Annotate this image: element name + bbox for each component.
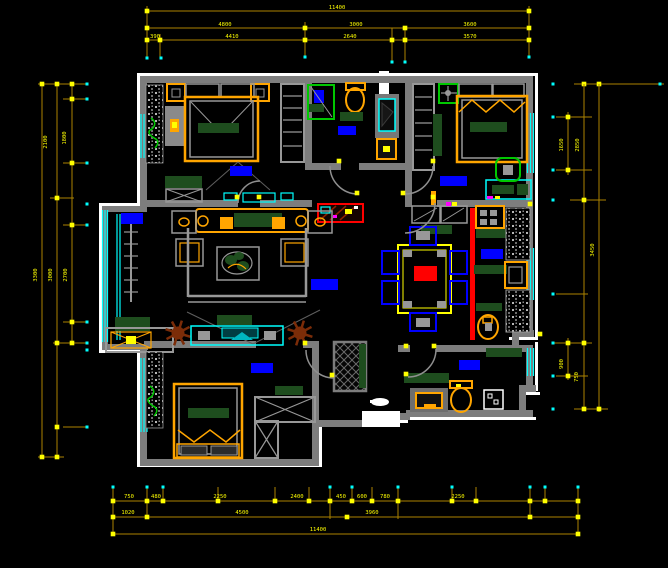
- dim-bottom-tick: [576, 499, 581, 504]
- dim-left-text: 2700: [63, 268, 69, 281]
- room-label-kitchen: [481, 249, 503, 259]
- outline-white: [319, 423, 322, 467]
- dim-right-tick: [582, 198, 587, 203]
- bathroom-2: [404, 373, 449, 383]
- bathroom-2: [424, 404, 436, 408]
- bathroom-2: [486, 348, 522, 357]
- kitchen: [474, 265, 507, 274]
- dim-left-tick: [40, 82, 45, 87]
- door: [330, 166, 358, 194]
- kitchen: [485, 323, 492, 331]
- dim-bottom-text: 450: [336, 494, 346, 500]
- door-tick: [401, 191, 406, 196]
- dim-bottom-tick: [145, 515, 150, 520]
- dim-left-point: [86, 98, 89, 101]
- living-room: [217, 315, 252, 325]
- dim-top-point: [391, 61, 394, 64]
- shaft: [359, 344, 366, 388]
- door-tick: [257, 195, 262, 200]
- dining-room: [450, 281, 467, 304]
- dim-bottom-text: 780: [380, 494, 390, 500]
- dining-room: [437, 250, 446, 257]
- door-tick: [404, 344, 409, 349]
- dim-left-point: [86, 349, 89, 352]
- dim-bottom-tick: [543, 499, 548, 504]
- dining-room: [403, 250, 412, 257]
- dim-top-tick: [145, 9, 150, 14]
- bathroom-2: [370, 400, 375, 403]
- wall: [260, 200, 312, 207]
- bedroom-1: [167, 84, 185, 101]
- dim-top-tick: [390, 38, 395, 43]
- dim-right-point: [552, 169, 555, 172]
- dim-bottom-tick: [350, 499, 355, 504]
- dim-top-tick: [145, 38, 150, 43]
- room-label-bedroom-3: [251, 363, 273, 373]
- bedroom-1: [186, 84, 219, 97]
- dining-room: [414, 266, 437, 281]
- dim-bottom-text: 11400: [310, 527, 327, 533]
- corridor: [452, 202, 457, 206]
- dim-top-text: 3600: [463, 22, 476, 28]
- dim-right-point: [552, 293, 555, 296]
- dim-left-point: [86, 203, 89, 206]
- dim-right-text: 3450: [590, 243, 596, 256]
- bathroom-2: [488, 394, 492, 398]
- dim-bottom-point: [451, 486, 454, 489]
- bathroom-2: [451, 388, 471, 412]
- bedroom-1: [172, 122, 177, 128]
- bedroom-1: [229, 102, 252, 126]
- bedroom-1: [221, 84, 254, 97]
- living-room: [264, 331, 276, 340]
- corridor: [345, 209, 352, 214]
- dim-top-tick: [403, 26, 408, 31]
- dim-right-tick: [597, 407, 602, 412]
- door: [238, 181, 260, 203]
- dim-bottom-text: 2250: [213, 494, 226, 500]
- dim-top-tick: [145, 26, 150, 31]
- outline-white: [404, 417, 536, 420]
- outline-white: [99, 203, 144, 206]
- dim-top-text: 2640: [343, 34, 356, 40]
- dim-left-text: 1800: [62, 131, 68, 144]
- dim-top-tick: [403, 38, 408, 43]
- bathroom-2-tick: [538, 332, 543, 337]
- bathroom-2: [494, 400, 498, 404]
- dim-right-point: [552, 83, 555, 86]
- bathroom-1: [309, 104, 324, 112]
- bedroom-1: [191, 102, 214, 126]
- dim-bottom-point: [351, 486, 354, 489]
- dim-top-point: [146, 57, 149, 60]
- dim-bottom-point: [544, 486, 547, 489]
- living-room: [220, 217, 233, 229]
- dim-bottom-tick: [328, 499, 333, 504]
- door-tick: [330, 373, 335, 378]
- dim-left-tick: [70, 223, 75, 228]
- dim-top-text: 4800: [218, 22, 231, 28]
- kitchen: [476, 229, 506, 238]
- door-tick: [404, 372, 409, 377]
- dim-right-text: 750: [574, 372, 580, 382]
- dim-top-text: 3570: [463, 34, 476, 40]
- living-room: [180, 243, 199, 262]
- bathroom-2: [456, 384, 461, 387]
- dim-bottom-point: [529, 486, 532, 489]
- corridor: [443, 208, 464, 221]
- dim-bottom-tick: [576, 532, 581, 537]
- dim-top-point: [304, 56, 307, 59]
- kitchen: [476, 303, 502, 311]
- living-room: [272, 217, 285, 229]
- dim-top-tick: [527, 26, 532, 31]
- kitchen: [490, 210, 497, 216]
- door-tick: [431, 159, 436, 164]
- corridor: [446, 202, 451, 206]
- outline-white: [535, 73, 538, 337]
- dining-room: [403, 301, 412, 308]
- dim-top-point: [404, 61, 407, 64]
- dim-top-text: 390: [150, 34, 160, 40]
- dim-bottom-point: [577, 486, 580, 489]
- wall: [405, 76, 412, 207]
- dim-bottom-tick: [145, 499, 150, 504]
- wall: [140, 459, 319, 466]
- dim-top-tick: [303, 26, 308, 31]
- bathroom-1: [340, 112, 363, 121]
- plant-icon: [172, 327, 185, 340]
- wall: [309, 163, 341, 170]
- kitchen: [483, 317, 492, 323]
- room-label-dining: [311, 279, 338, 290]
- dim-right-point: [552, 199, 555, 202]
- dining-room: [416, 318, 430, 327]
- room-label-bathroom-2: [459, 360, 480, 370]
- wall: [144, 200, 238, 207]
- bedroom-2-tick: [528, 202, 533, 207]
- dim-bottom-tick: [528, 515, 533, 520]
- bedroom-1: [172, 89, 180, 97]
- kitchen: [480, 219, 487, 225]
- dim-bottom-tick: [111, 532, 116, 537]
- kitchen: [490, 219, 497, 225]
- living-room: [179, 218, 189, 226]
- dim-left-tick: [40, 455, 45, 460]
- dim-bottom-point: [329, 486, 332, 489]
- bedroom-2: [470, 122, 507, 132]
- bedroom-2: [492, 185, 514, 194]
- wall: [102, 206, 147, 212]
- bedroom-2: [445, 90, 451, 96]
- outline-white: [99, 203, 102, 351]
- dim-left-point: [86, 342, 89, 345]
- dining-room: [437, 301, 446, 308]
- dim-left-tick: [55, 196, 60, 201]
- bathroom-2: [362, 411, 400, 427]
- dining-room: [450, 251, 467, 274]
- dim-top-text: 3000: [349, 22, 362, 28]
- door-tick: [355, 191, 360, 196]
- bedroom-2: [495, 196, 500, 199]
- dim-left-text: 2100: [43, 135, 49, 148]
- dim-bottom-text: 2250: [451, 494, 464, 500]
- cad-canvas[interactable]: 1140048003000360039044102640357016502850…: [0, 0, 668, 568]
- dim-right-point: [659, 83, 662, 86]
- living-room: [198, 216, 208, 226]
- dim-bottom-text: 480: [151, 494, 161, 500]
- dim-bottom-tick: [273, 499, 278, 504]
- dim-left-point: [86, 224, 89, 227]
- dim-left-tick: [55, 82, 60, 87]
- living-room: [285, 243, 304, 262]
- dim-left-tick: [55, 425, 60, 430]
- dim-right-point: [552, 342, 555, 345]
- bedroom-3: [178, 430, 240, 442]
- door: [408, 349, 436, 377]
- corridor: [333, 215, 337, 218]
- dim-right-point: [552, 375, 555, 378]
- floor-plan-drawing: 1140048003000360039044102640357016502850…: [0, 0, 668, 568]
- bedroom-3: [211, 446, 237, 455]
- bedroom-3: [188, 408, 229, 418]
- dim-top-tick: [527, 38, 532, 43]
- dim-bottom-tick: [396, 499, 401, 504]
- living-room: [234, 252, 244, 260]
- dim-bottom-tick: [111, 499, 116, 504]
- dim-right-tick: [582, 407, 587, 412]
- room-label-bedroom-1: [230, 166, 252, 176]
- dim-left-point: [86, 83, 89, 86]
- dim-left-point: [86, 321, 89, 324]
- dim-bottom-tick: [370, 499, 375, 504]
- dim-bottom-tick: [161, 499, 166, 504]
- bedroom-2: [503, 165, 513, 175]
- bathroom-1: [346, 88, 364, 112]
- dim-bottom-tick: [576, 515, 581, 520]
- living-room: [172, 211, 196, 233]
- dim-bottom-point: [162, 486, 165, 489]
- dim-right-point: [552, 408, 555, 411]
- bedroom-3: [146, 352, 163, 428]
- living-room: [126, 336, 136, 344]
- dim-bottom-text: 750: [124, 494, 134, 500]
- dim-bottom-text: 4500: [235, 510, 248, 516]
- dim-right-tick: [566, 341, 571, 346]
- dim-bottom-point: [112, 486, 115, 489]
- outline-white: [137, 73, 140, 212]
- outline-white: [526, 392, 540, 395]
- dim-left-tick: [70, 97, 75, 102]
- dim-right-tick: [566, 115, 571, 120]
- dim-top-tick: [527, 9, 532, 14]
- room-label-bathroom-1: [338, 126, 356, 135]
- bedroom-3: [275, 386, 303, 395]
- room-label-bedroom-2: [440, 176, 467, 186]
- dim-right-point: [552, 116, 555, 119]
- living-room: [296, 216, 306, 226]
- bathroom-1: [383, 146, 390, 152]
- bedroom-1: [198, 123, 239, 133]
- dim-right-text: 900: [559, 359, 565, 369]
- kitchen: [506, 290, 530, 332]
- dim-right-tick: [566, 168, 571, 173]
- dim-bottom-tick: [307, 499, 312, 504]
- kitchen: [506, 208, 530, 260]
- bedroom-2: [487, 196, 493, 199]
- dim-left-point: [86, 162, 89, 165]
- dining-room: [382, 251, 399, 274]
- bedroom-2: [517, 184, 528, 195]
- dim-bottom-text: 600: [357, 494, 367, 500]
- dim-bottom-tick: [111, 515, 116, 520]
- dim-bottom-text: 2400: [290, 494, 303, 500]
- kitchen: [509, 267, 522, 283]
- door-tick: [303, 341, 308, 346]
- dim-right-tick: [566, 374, 571, 379]
- bedroom-1: [165, 176, 202, 188]
- dim-top-point: [160, 57, 163, 60]
- dim-bottom-text: 1020: [121, 510, 134, 516]
- dim-bottom-tick: [474, 499, 479, 504]
- dim-top-text: 4410: [225, 34, 238, 40]
- dim-bottom-text: 3960: [365, 510, 378, 516]
- outline-white: [137, 350, 140, 466]
- dim-top-text: 11400: [329, 5, 346, 11]
- dining-room: [382, 281, 399, 304]
- dim-left-tick: [70, 82, 75, 87]
- bedroom-2: [433, 114, 442, 156]
- outline-white: [137, 73, 536, 76]
- kitchen: [480, 210, 487, 216]
- bedroom-1: [281, 193, 293, 200]
- dim-left-tick: [70, 320, 75, 325]
- dim-bottom-point: [397, 486, 400, 489]
- bedroom-3: [181, 446, 207, 455]
- corridor: [354, 206, 358, 209]
- dim-bottom-tick: [345, 515, 350, 520]
- dim-left-point: [86, 426, 89, 429]
- dim-left-tick: [55, 455, 60, 460]
- dim-left-tick: [70, 161, 75, 166]
- bathroom-1: [314, 90, 324, 103]
- dim-right-tick: [582, 341, 587, 346]
- door-tick: [235, 195, 240, 200]
- dim-left-tick: [70, 341, 75, 346]
- dim-bottom-tick: [528, 499, 533, 504]
- dim-bottom-point: [146, 486, 149, 489]
- bedroom-2: [459, 100, 525, 112]
- dim-left-text: 3300: [33, 268, 39, 281]
- living-room: [198, 331, 210, 340]
- room-label-living: [121, 213, 143, 224]
- dim-right-text: 2850: [575, 138, 581, 151]
- dim-top-tick: [303, 38, 308, 43]
- door-tick: [337, 159, 342, 164]
- door-tick: [431, 195, 436, 200]
- dim-right-text: 1650: [559, 138, 565, 151]
- wall: [359, 163, 411, 170]
- door-tick: [432, 344, 437, 349]
- dim-left-tick: [55, 341, 60, 346]
- outline-white: [535, 342, 538, 391]
- dim-left-text: 3000: [48, 268, 54, 281]
- wall: [140, 76, 533, 83]
- outline-white: [379, 71, 389, 98]
- dim-top-point: [528, 56, 531, 59]
- kitchen: [505, 262, 527, 288]
- plant-icon: [294, 327, 307, 340]
- dining-room: [416, 231, 430, 240]
